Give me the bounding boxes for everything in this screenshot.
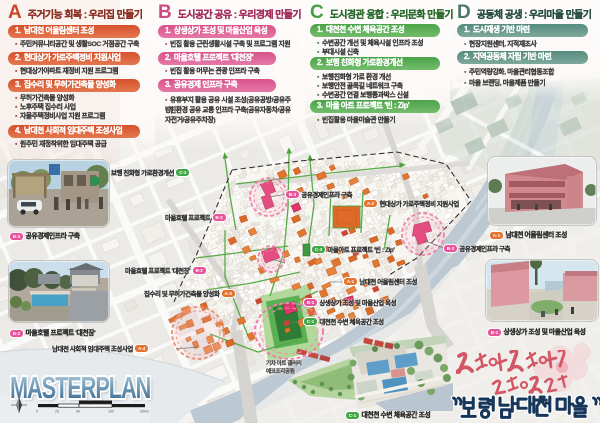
svg-text:0: 0 — [36, 410, 38, 414]
svg-text:200m: 200m — [140, 410, 149, 414]
svg-text:100: 100 — [108, 410, 114, 414]
svg-text:25: 25 — [55, 410, 59, 414]
svg-text:50: 50 — [76, 410, 80, 414]
